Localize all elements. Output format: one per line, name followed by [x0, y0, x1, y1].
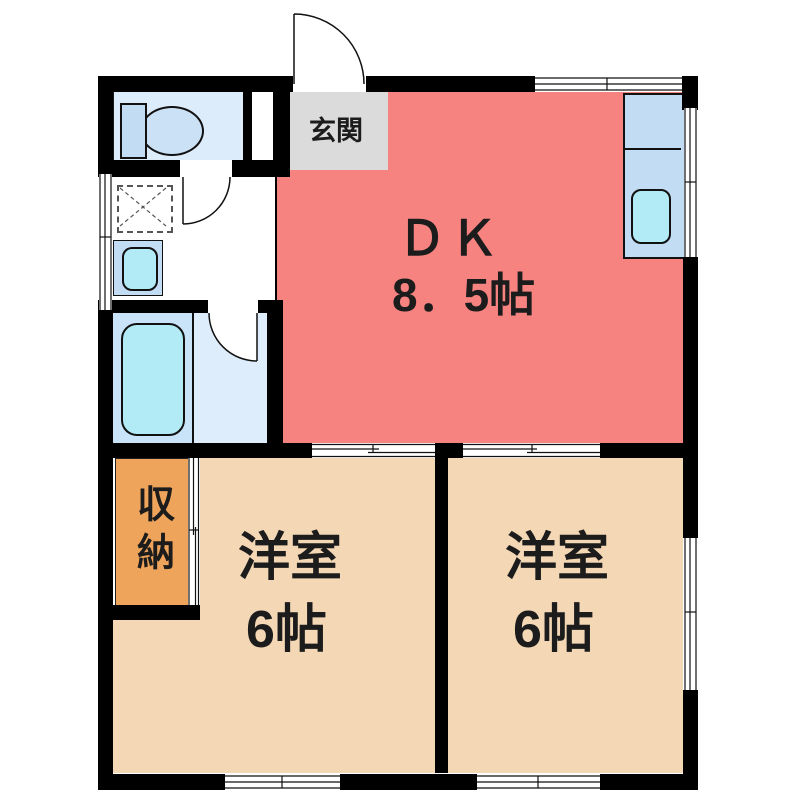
- storage-label: 収納: [115, 458, 188, 605]
- entrance-label: 玄関: [284, 92, 388, 170]
- wall-right-mid: [683, 257, 698, 538]
- wall-mid-band-left: [98, 443, 312, 458]
- sliding-door-dk-left-room: [312, 443, 435, 458]
- washing-machine-pan-icon: [117, 185, 173, 233]
- kitchen-counter-divider: [625, 148, 681, 150]
- wall-mid-band-center: [435, 443, 463, 458]
- toilet-tank-icon: [120, 103, 147, 159]
- wall-toilet-right: [243, 92, 252, 160]
- washbasin-bowl: [122, 247, 158, 291]
- window-right-room: [684, 538, 697, 690]
- window-left: [99, 174, 112, 310]
- wall-mid-band-right: [600, 443, 683, 458]
- wall-bottom-left: [98, 774, 225, 790]
- toilet-bowl-icon: [140, 106, 204, 156]
- wall-top-left: [98, 76, 293, 92]
- entrance-door-arc-icon: [294, 14, 364, 84]
- bathroom-door-opening: [208, 301, 258, 313]
- dk-size-label: 8．5帖: [392, 272, 535, 318]
- entrance-door-opening: [293, 76, 366, 92]
- kitchen-sink: [631, 189, 671, 244]
- sliding-door-dk-right-room: [463, 443, 600, 458]
- wall-bottom-right: [600, 774, 698, 790]
- partition-washroom-dk: [275, 177, 277, 300]
- dk-label: ＤＫ: [398, 216, 502, 264]
- wall-corner-top-right: [682, 76, 698, 110]
- wall-bottom-mid: [340, 774, 477, 790]
- wall-toilet-bottom-left: [98, 160, 180, 177]
- window-bottom-left-room: [225, 775, 340, 789]
- wall-bathroom-top-left: [98, 300, 208, 313]
- room-right-label: 洋室: [505, 532, 609, 584]
- window-top: [535, 77, 682, 91]
- room-left-floor-extension: [113, 620, 200, 773]
- room-left-label: 洋室: [238, 532, 342, 584]
- wall-between-rooms: [435, 457, 448, 773]
- wall-storage-bottom: [98, 605, 200, 620]
- bathtub: [121, 323, 185, 436]
- wall-top-mid: [366, 76, 535, 92]
- room-right-size-label: 6帖: [513, 604, 594, 656]
- wall-left-lower: [98, 310, 113, 790]
- bathroom-floor-door-side: [192, 313, 269, 443]
- window-bottom-right-room: [477, 775, 600, 789]
- wall-bathroom-right-column: [267, 300, 283, 458]
- room-left-size-label: 6帖: [246, 604, 327, 656]
- floor-plan: 玄関 ＤＫ 8．5帖 洋室 6帖 洋室 6帖 収納: [0, 0, 800, 800]
